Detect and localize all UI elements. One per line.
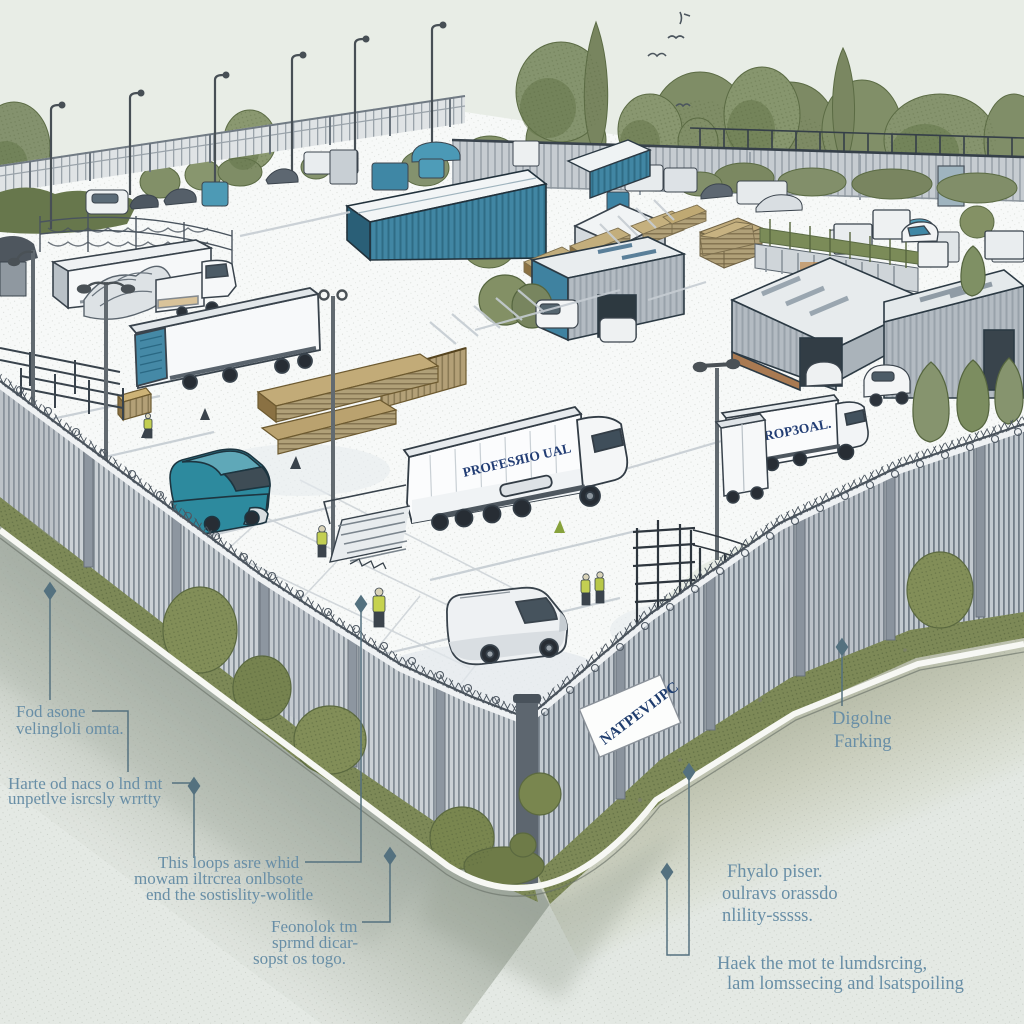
svg-text:velingloli omta.: velingloli omta. [16,719,124,738]
svg-text:lam lomssecing and lsatspoilin: lam lomssecing and lsatspoiling [727,974,964,994]
svg-text:unpetlve isrcsly wrrtty: unpetlve isrcsly wrrtty [8,789,161,808]
svg-text:Haek the mot te lumdsrcing,: Haek the mot te lumdsrcing, [717,954,927,974]
svg-text:Farking: Farking [834,732,892,752]
svg-text:oulravs orassdo: oulravs orassdo [722,884,838,904]
svg-text:sopst os togo.: sopst os togo. [253,949,346,968]
svg-text:Fhyalo piser.: Fhyalo piser. [727,862,823,882]
svg-text:end the sostislity-wolitle: end the sostislity-wolitle [146,885,313,904]
svg-text:nlility-sssss.: nlility-sssss. [722,906,813,926]
svg-text:Digolne: Digolne [832,709,892,729]
